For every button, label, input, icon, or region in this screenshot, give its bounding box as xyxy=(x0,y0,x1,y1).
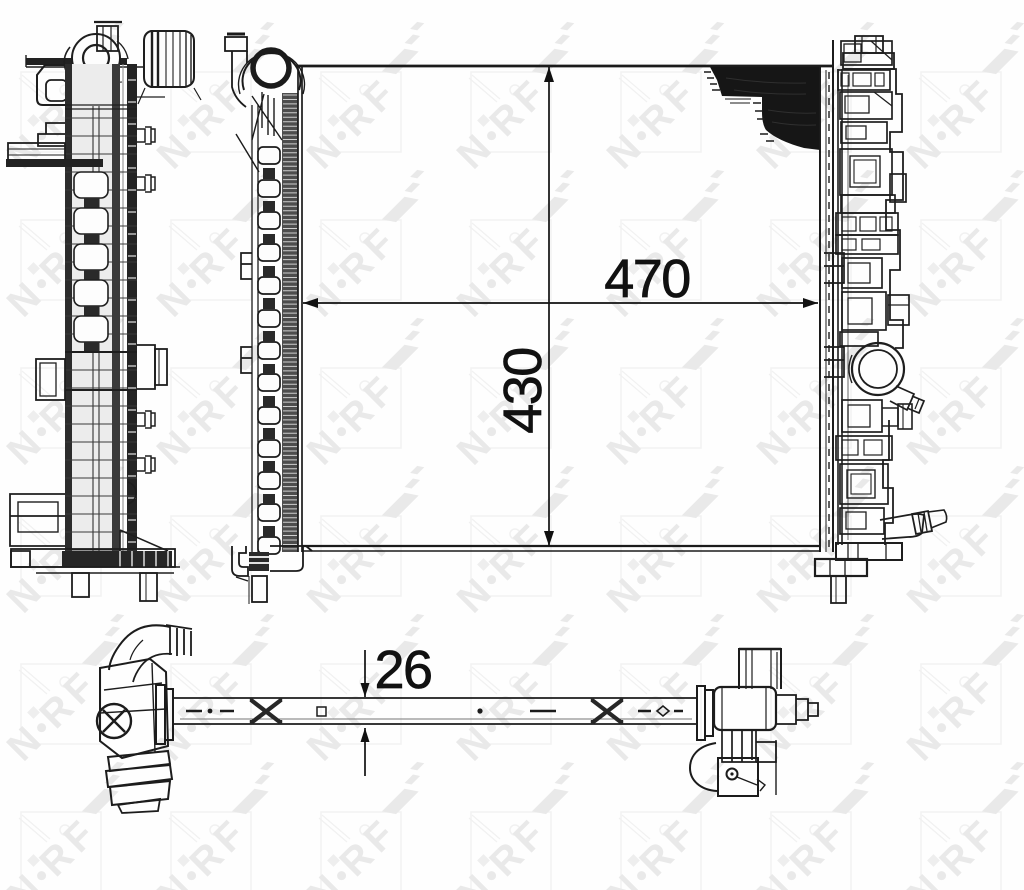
svg-text:430: 430 xyxy=(493,348,553,434)
svg-text:26: 26 xyxy=(374,640,431,700)
svg-text:470: 470 xyxy=(604,249,690,309)
